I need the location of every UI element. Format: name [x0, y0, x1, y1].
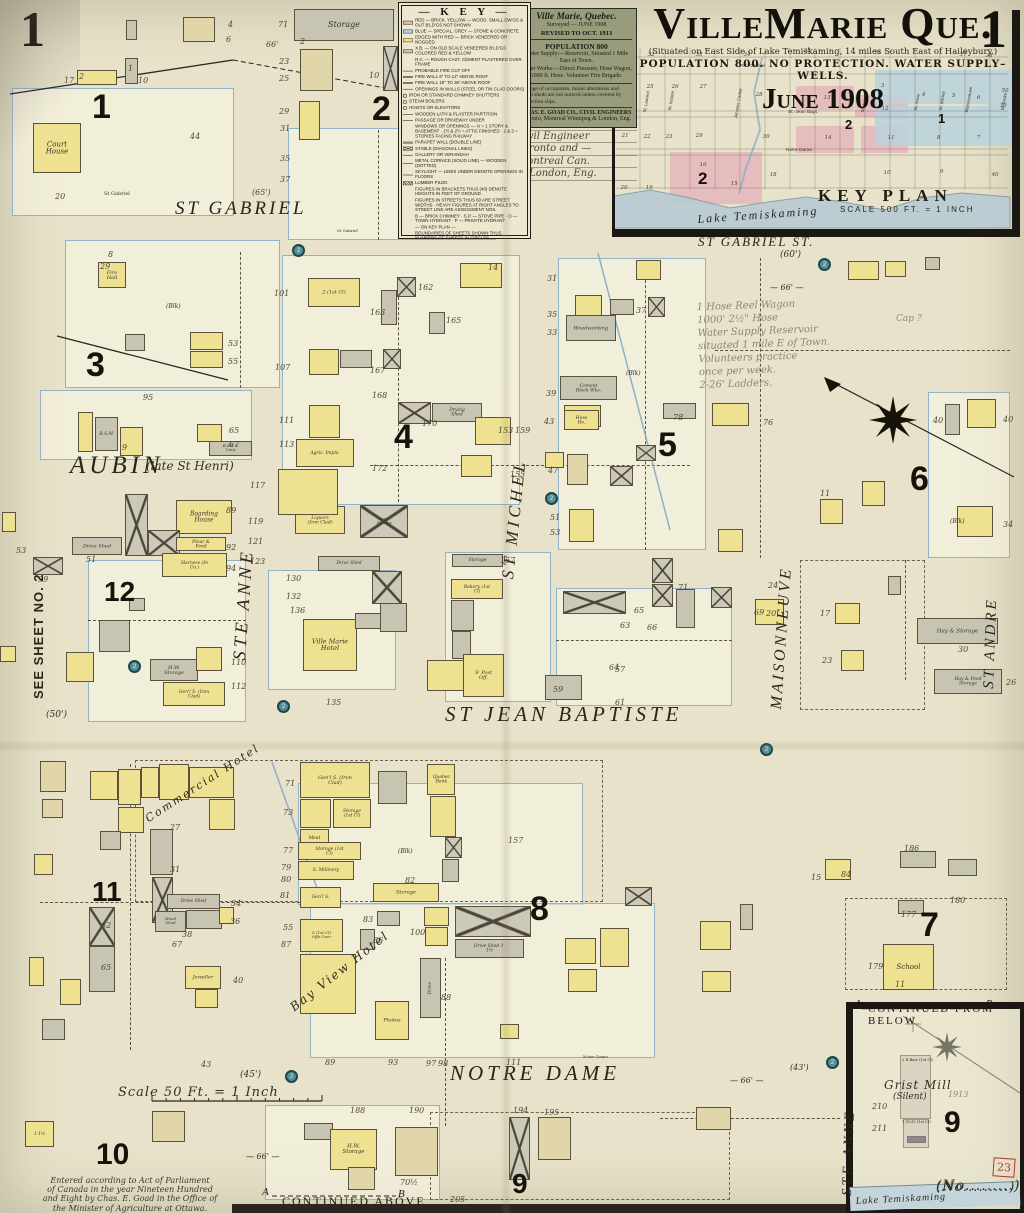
building: Court House	[33, 123, 81, 173]
annotation: Cap ?	[896, 314, 922, 324]
lot-number: 39	[546, 389, 556, 398]
key-entry: PROBABLE FIRE CUT OFF	[403, 68, 526, 73]
key-symbol-line-icon	[403, 155, 413, 156]
building	[190, 332, 223, 350]
building	[429, 312, 445, 334]
keyplan-block-number: 2	[845, 118, 852, 131]
building	[126, 20, 137, 40]
building-label: Sᵗ Post Off.	[471, 670, 495, 680]
key-entry-text: FIGURES IN BRACKETS THUS (40) DENOTE HEI…	[415, 187, 526, 197]
building-label: Meat	[307, 836, 322, 841]
key-entry-text: PROBABLE FIRE CUT OFF	[415, 68, 470, 73]
building: Gen'l S.	[300, 887, 341, 908]
block-number: 11	[92, 878, 122, 906]
lot-number: 23	[279, 57, 289, 66]
key-entry-text: FIRE WALL 18" TO 36" ABOVE ROOF	[415, 81, 491, 86]
lot-number: 67	[229, 440, 239, 449]
city-block	[430, 1112, 730, 1200]
lot-number: 210	[872, 1102, 887, 1111]
building-label: H.W. Storage	[338, 1144, 369, 1156]
lot-number: 35	[547, 310, 557, 319]
building	[652, 584, 673, 607]
building: Drive Shed 1-1½	[455, 939, 524, 958]
building	[278, 469, 338, 515]
lot-number: 53	[228, 339, 238, 348]
lot-line	[556, 640, 732, 641]
lot-number: 194	[513, 1106, 528, 1115]
lot-number: 186	[904, 844, 919, 853]
key-entry: — ON KEY PLAN —	[403, 225, 526, 230]
keyplan-lot-number: 3	[881, 82, 884, 88]
key-entry: WINDOWS OR OPENINGS — ⅓ = 1 STORY & BASE…	[403, 124, 526, 139]
keyplan-lot-number: 35	[804, 47, 811, 53]
lot-line	[445, 958, 446, 1126]
lot-number: 55	[228, 357, 238, 366]
key-entry: R.C. — ROUGH CAST. CEMENT PLASTERED OVER…	[403, 57, 526, 67]
street-label-st-jean-baptiste: St Jean Baptiste	[445, 702, 682, 727]
building	[380, 603, 407, 632]
building	[383, 46, 398, 91]
keyplan-frame-bottom	[612, 229, 1020, 237]
keyplan-lot-number: 5	[952, 92, 955, 98]
lot-line	[905, 560, 906, 680]
building	[118, 769, 141, 805]
key-entry-text: EDGED WITH RED — BRICK VENEERED OR NOGGE…	[415, 35, 526, 45]
key-entry-text: B — BRICK CHIMNEY · S.P. — STOVE PIPE · …	[415, 214, 526, 224]
lot-number: 53	[550, 528, 560, 537]
key-entry-text: HOISTS OR ELEVATORS	[409, 106, 460, 111]
building	[355, 613, 381, 629]
sheet-number-right: 1	[980, 2, 1007, 56]
lot-number: 64	[609, 663, 619, 672]
map-sheet: 1 1 VilleMarie Que. (Situated on East Si…	[0, 0, 1024, 1213]
block-number: 7	[920, 908, 939, 942]
keyplan-block-number: 1	[938, 112, 945, 125]
building	[141, 767, 159, 798]
annotation: (Blk)	[398, 848, 413, 855]
key-entry: FIRE WALL 6" TO 12" ABOVE ROOF	[403, 75, 526, 80]
keyplan-lot-number: 27	[700, 83, 707, 89]
building: Jeweller	[185, 966, 221, 989]
building	[967, 399, 996, 428]
lot-number: 65	[634, 606, 644, 615]
lot-number: 67	[172, 940, 182, 949]
key-entry-text: STABLE (DIAGONAL LINES)	[415, 146, 472, 151]
key-entry: HOISTS OR ELEVATORS	[403, 106, 526, 111]
building	[430, 796, 456, 837]
lot-number: 130	[286, 574, 301, 583]
key-entry: BLUE — SPECIAL. GREY — STONE & CONCRETE	[403, 29, 526, 34]
key-entry: OPENINGS IN WALLS (STEEL OR TIN CLAD DOO…	[403, 87, 526, 92]
lot-number: 44	[190, 132, 200, 141]
building-label: Gen'l S. (Iron Clad)	[177, 689, 211, 698]
building: Drive Shed	[167, 894, 220, 909]
key-entry-text: FIGURES IN STREETS THUS 60 ARE STREET WI…	[415, 198, 526, 213]
building	[888, 576, 901, 595]
lot-number: 53	[16, 546, 26, 555]
key-symbol-line-icon	[403, 114, 413, 115]
key-entry: FIGURES IN STREETS THUS 60 ARE STREET WI…	[403, 198, 526, 213]
lot-line	[660, 1118, 840, 1119]
copyright-line: of Canada in the year Nineteen Hundred	[20, 1185, 240, 1194]
building	[90, 771, 118, 800]
building-label: 2 (1st Cl)	[318, 290, 349, 295]
building: Ville Marie Hotel	[303, 619, 357, 671]
key-entry: SKYLIGHT — LINES UNDER DENOTE OPENINGS I…	[403, 170, 526, 180]
lot-number: 29	[279, 107, 289, 116]
keyplan-street-label: St. Laurent	[642, 91, 651, 113]
building-label: Storage (1st Cl)	[312, 846, 346, 855]
key-entry-text: BOUNDARIES OF SHEETS SHOWN THUS · NUMBER…	[415, 231, 526, 239]
info-title: Ville Marie, Quebec.	[521, 12, 632, 22]
lot-line	[378, 130, 379, 240]
lot-number: 35	[280, 154, 290, 163]
building: 1-1½	[25, 1121, 54, 1147]
block-number: 2	[372, 92, 391, 126]
lot-number: 83	[363, 915, 373, 924]
building-label: 1-1½	[32, 1132, 47, 1137]
building-label: B.S.M	[100, 432, 114, 437]
annotation: (Silent)	[893, 1092, 927, 1102]
building	[372, 571, 402, 604]
lot-number: 25	[279, 74, 289, 83]
keyplan-lot-number: 8	[937, 134, 940, 140]
building	[299, 101, 320, 140]
building-label: Drive	[428, 982, 433, 994]
hydrant-symbol: 2	[277, 700, 290, 713]
keyplan-lot-number: 12	[882, 105, 889, 111]
key-entry: FIGURES IN BRACKETS THUS (40) DENOTE HEI…	[403, 187, 526, 197]
handwriting-line: Civil Engineer	[517, 131, 637, 144]
lot-number: 11	[820, 489, 830, 498]
building	[600, 928, 629, 967]
keyplan-lot-number: 9	[940, 168, 943, 174]
building: Flour & Feed	[176, 537, 226, 551]
keyplan-lot-number: 30	[763, 133, 770, 139]
block-number: 8	[530, 892, 549, 926]
keyplan-lot-number: 36	[874, 49, 881, 55]
neat-line	[232, 1204, 846, 1213]
building-label: Flour & Feed	[188, 539, 215, 548]
keyplan-street-label: St. Jean Bapt.	[788, 109, 818, 114]
hydrant-symbol: 2	[545, 492, 558, 505]
building	[648, 297, 665, 317]
lot-number: 119	[248, 517, 263, 526]
lot-number: 43	[544, 417, 554, 426]
building: Storage	[452, 554, 503, 567]
key-symbol-pink-icon	[403, 21, 413, 25]
copyright-note: Entered according to Act of Parliamentof…	[20, 1176, 240, 1213]
keyplan-block-number: 2	[698, 170, 707, 187]
lot-number: 92	[226, 543, 236, 552]
building: B.S.M	[95, 417, 118, 451]
building-label: Fire Hall	[104, 270, 120, 280]
key-entry-text: SKYLIGHT — LINES UNDER DENOTE OPENINGS I…	[415, 170, 526, 180]
key-entry: PARAPET WALL (DOUBLE LINE)	[403, 140, 526, 145]
keyplan-lot-number: 23	[666, 133, 673, 139]
building	[383, 349, 401, 369]
building	[300, 799, 331, 828]
lot-number: 1	[128, 64, 133, 73]
street-label-ste-anne: Ste Anne	[840, 1109, 859, 1196]
lot-number: 9	[122, 443, 127, 452]
lot-number: 82	[405, 876, 415, 885]
building	[78, 412, 93, 452]
annotation: St Gabriel	[337, 228, 358, 233]
block-number: 9	[512, 1170, 528, 1198]
lot-number: 37	[280, 175, 290, 184]
lot-number: 79	[281, 863, 291, 872]
building	[700, 921, 731, 950]
building-label: Bakery (1st Cl)	[463, 584, 491, 593]
lot-number: 27	[170, 823, 180, 832]
building	[568, 969, 597, 992]
lot-number: 100	[410, 928, 425, 937]
lot-number: 71	[278, 20, 288, 29]
building	[125, 494, 148, 556]
building-label: Harness (In Co.)	[177, 560, 212, 569]
building-label: Woodworking	[574, 325, 609, 330]
building	[378, 771, 407, 804]
building-label: Agric. Impls.	[309, 451, 341, 456]
lot-number: 17	[64, 76, 74, 85]
keyplan-lot-number: 40	[992, 171, 999, 177]
block-number: 1	[92, 90, 111, 124]
street-label-notre-dame: Notre Dame	[450, 1061, 620, 1086]
info-water-supply: Water Supply:—Reservoir, Situated 1 Mile…	[521, 51, 632, 66]
keyplan-lot-number: 16	[700, 161, 707, 167]
key-entry-text: PASSAGE OR DRIVEWAY UNDER	[415, 118, 485, 123]
lot-number: 6	[226, 35, 231, 44]
building: S. Millinery	[298, 861, 354, 880]
building	[304, 1123, 333, 1140]
building: H.W. Storage	[330, 1129, 377, 1170]
building-label: Drying Shed	[444, 408, 471, 417]
building: Storage (1st Cl)	[298, 842, 361, 860]
keyplan-lot-number: 25	[647, 83, 654, 89]
lot-number: 23	[822, 656, 832, 665]
keyplan-lot-number: 15	[731, 180, 738, 186]
lot-number: 162	[418, 283, 433, 292]
building	[848, 261, 879, 280]
building-label: Drive Shed 1-1½	[471, 944, 509, 953]
key-entry: RED — BRICK. YELLOW — WOOD. SMALL DW'GS …	[403, 18, 526, 28]
lot-number: 65	[229, 426, 239, 435]
building	[100, 831, 121, 850]
building	[427, 660, 464, 691]
key-symbol-line2-icon	[403, 142, 413, 144]
building	[66, 652, 94, 682]
lot-number: 66'	[266, 40, 278, 49]
key-symbol-line2-icon	[403, 76, 413, 78]
info-firm: CHAS. E. GOAD CO., CIVIL ENGINEERS	[521, 107, 632, 116]
building	[42, 1019, 65, 1040]
building	[925, 257, 940, 270]
lot-number: 93	[388, 1058, 398, 1067]
copyright-line: and Eight by Chas. E. Goad in the Office…	[20, 1194, 240, 1203]
key-entry: STEAM BOILERS	[403, 99, 526, 104]
info-note: Change of occupation, minor alterations …	[521, 83, 632, 106]
lot-number: 40	[233, 976, 243, 985]
block-number: 10	[96, 1140, 129, 1170]
building	[712, 403, 749, 426]
building	[455, 906, 531, 937]
key-symbol-line-icon	[403, 120, 413, 121]
handwriting-line: Montreal Can.	[517, 156, 637, 169]
block-number: 6	[910, 462, 929, 496]
building	[885, 261, 906, 277]
key-entry-text: WINDOWS OR OPENINGS — ⅓ = 1 STORY & BASE…	[415, 124, 526, 139]
hydrant-symbol: 2	[285, 1070, 298, 1083]
building	[625, 887, 652, 906]
keyplan-lot-number: 4	[922, 91, 925, 97]
building	[125, 334, 145, 351]
building-label: H.W. Storage	[160, 665, 189, 675]
key-symbol-line-icon	[403, 71, 413, 72]
lot-number: 14	[488, 263, 498, 272]
building: Photos	[375, 1001, 409, 1040]
key-symbol-line-icon	[403, 174, 413, 175]
building	[442, 859, 459, 882]
annotation: Notre Dame	[583, 1054, 608, 1059]
lot-number: 159	[515, 426, 530, 435]
building	[718, 529, 743, 552]
lot-number: 111	[279, 416, 294, 425]
lot-number: 101	[274, 289, 289, 298]
lot-number: 195	[544, 1108, 559, 1117]
building: Drive Shed	[72, 537, 122, 555]
annotation: St Gabriel	[104, 191, 130, 197]
lot-number: 71	[285, 779, 295, 788]
lot-number: 113	[279, 440, 294, 449]
building	[152, 1111, 185, 1142]
building-label: Wood Shed	[163, 917, 178, 925]
building: School	[883, 944, 934, 990]
building: Cement Block Wks.	[560, 376, 617, 400]
keyplan-lot-number: 32	[648, 51, 655, 57]
building	[563, 591, 626, 614]
lot-number: 31	[280, 124, 290, 133]
lot-number: 40	[1003, 415, 1013, 424]
key-entry-text: WOODEN LATH & PLASTER PARTITION	[415, 112, 497, 117]
building-label: Agr. Stables	[373, 517, 396, 525]
hydrant-symbol: 2	[292, 244, 305, 257]
annotation: 2 R.Bast (1st Cl)	[902, 1058, 933, 1062]
building	[610, 299, 634, 315]
building	[60, 979, 81, 1005]
lot-number: 15	[811, 873, 821, 882]
key-entry: PASSAGE OR DRIVEWAY UNDER	[403, 118, 526, 123]
key-symbol-line-icon	[403, 163, 413, 164]
lot-number: 51	[86, 555, 96, 564]
info-offices: Toronto, Montreal Winnipeg & London, Eng…	[521, 116, 632, 124]
lot-number: 98	[438, 1059, 448, 1068]
key-entry-text: OPENINGS IN WALLS (STEEL OR TIN CLAD DOO…	[415, 87, 524, 92]
compass-star-icon	[869, 396, 917, 444]
lot-number: 55	[283, 923, 293, 932]
key-entry: METAL CORNICE (SOLID LINE) — WOODEN (DOT…	[403, 159, 526, 169]
lot-number: 71	[678, 583, 688, 592]
key-entry: FIRE WALL 18" TO 36" ABOVE ROOF	[403, 81, 526, 86]
keyplan-lot-number: 18	[770, 171, 777, 177]
building: Woodworking	[566, 315, 616, 341]
building	[676, 589, 695, 628]
building: Agr. Stables	[360, 505, 408, 538]
lot-number: 17	[820, 609, 830, 618]
annotation: — 66' —	[246, 1152, 279, 1161]
street-label-st-gabriel: St Gabriel	[175, 198, 307, 220]
annotation: (50')	[46, 710, 67, 720]
building	[40, 761, 66, 792]
fold-crease-horizontal	[0, 740, 1024, 752]
lot-number: 132	[286, 592, 301, 601]
building	[397, 277, 416, 297]
key-legend: — K E Y — RED — BRICK. YELLOW — WOOD. SM…	[398, 2, 531, 239]
lot-number: 168	[372, 391, 387, 400]
hydrant-symbol: 2	[760, 743, 773, 756]
building	[948, 859, 977, 876]
info-population: POPULATION 800	[521, 39, 632, 51]
lot-line	[240, 252, 241, 388]
lot-line	[398, 292, 399, 502]
lot-number: 40	[933, 416, 943, 425]
building: Quebec Bank	[427, 764, 455, 795]
building	[424, 907, 449, 926]
key-entry-text: X.B. — ON OLD SCALE VENEERED B'LD'GS COL…	[415, 46, 526, 56]
keyplan-street-label: Notre Dame	[786, 147, 812, 152]
lot-number: 153	[498, 426, 513, 435]
lot-number: 65	[101, 963, 111, 972]
street-label-lake-temiskaming: Lake Temiskaming	[697, 204, 819, 227]
annotation: Grist Mill	[884, 1078, 952, 1092]
building	[696, 1107, 731, 1130]
building	[309, 405, 340, 438]
building	[190, 351, 223, 368]
pencil-note: 1 Hose Reel Wagon1000' 2½" HoseWater Sup…	[696, 295, 879, 392]
building	[99, 620, 130, 652]
key-symbol-hatch-icon	[403, 181, 413, 185]
lot-line	[645, 260, 646, 550]
key-entry: STABLE (DIAGONAL LINES)	[403, 146, 526, 151]
building-label: School	[887, 963, 930, 970]
annotation: — 66' —	[770, 283, 803, 292]
key-entry-text: RED — BRICK. YELLOW — WOOD. SMALL DW'GS …	[415, 18, 526, 28]
annotation: (43')	[790, 1063, 809, 1072]
bottom-marker-a: A	[262, 1186, 271, 1198]
annotation: (late St Henri)	[146, 459, 234, 473]
building-label: Ville Marie Hotel	[309, 638, 351, 652]
building	[309, 349, 339, 375]
lot-number: 112	[231, 682, 246, 691]
building	[610, 466, 633, 486]
keyplan-street-label: St. Gabriel	[742, 63, 765, 68]
keyplan-lot-number: 14	[825, 134, 832, 140]
key-symbol-line2-icon	[403, 82, 413, 84]
keyplan-lot-number: 22	[644, 133, 651, 139]
key-entry-text: PARAPET WALL (DOUBLE LINE)	[415, 140, 481, 145]
lot-number: 11	[895, 980, 905, 989]
info-surveyed: Surveyed — JUNE 1908	[521, 22, 632, 30]
building-label: Drive Shed	[332, 561, 366, 566]
building: Drive	[420, 958, 441, 1018]
annotation: 1 (N.P.) (1st Cl)	[902, 1120, 931, 1124]
street-label-st-andre: St Andre	[981, 597, 1001, 689]
annotation: (No.........)	[936, 1180, 1015, 1195]
lot-number: 89	[325, 1058, 335, 1067]
lot-number: 165	[446, 316, 461, 325]
info-box: Ville Marie, Quebec. Surveyed — JUNE 190…	[516, 8, 637, 128]
info-water-works: Water Works:—Direct Pressure, Hose Wagon…	[521, 66, 632, 81]
